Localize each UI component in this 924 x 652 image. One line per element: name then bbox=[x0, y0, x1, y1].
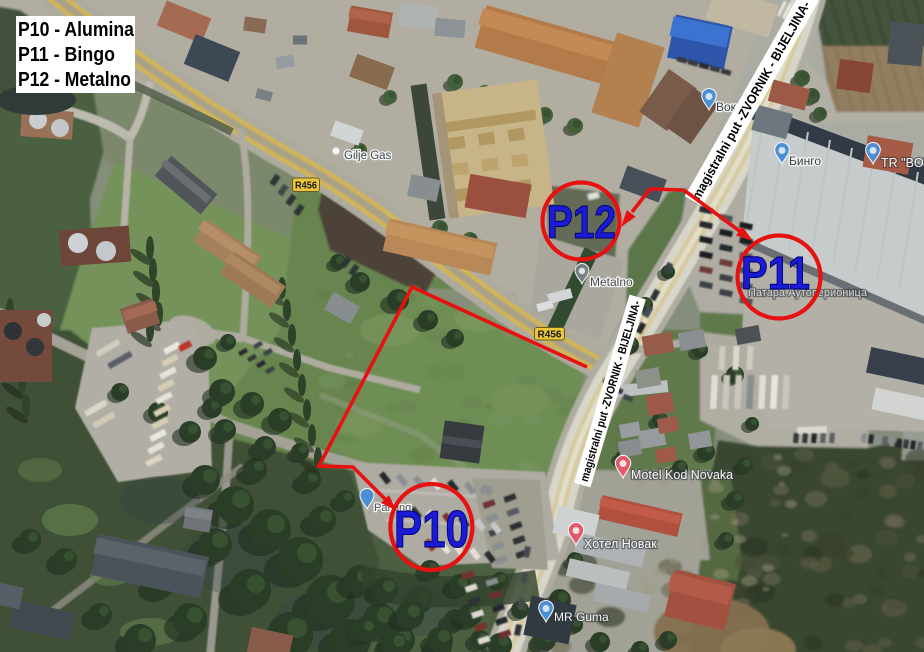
svg-text:P12: P12 bbox=[547, 196, 616, 248]
svg-text:P10 - Alumina: P10 - Alumina bbox=[18, 18, 135, 41]
svg-text:P11: P11 bbox=[741, 247, 810, 299]
svg-text:P11 - Bingo: P11 - Bingo bbox=[18, 43, 115, 66]
svg-text:P12 - Metalno: P12 - Metalno bbox=[18, 68, 131, 91]
svg-text:P10: P10 bbox=[394, 501, 469, 559]
